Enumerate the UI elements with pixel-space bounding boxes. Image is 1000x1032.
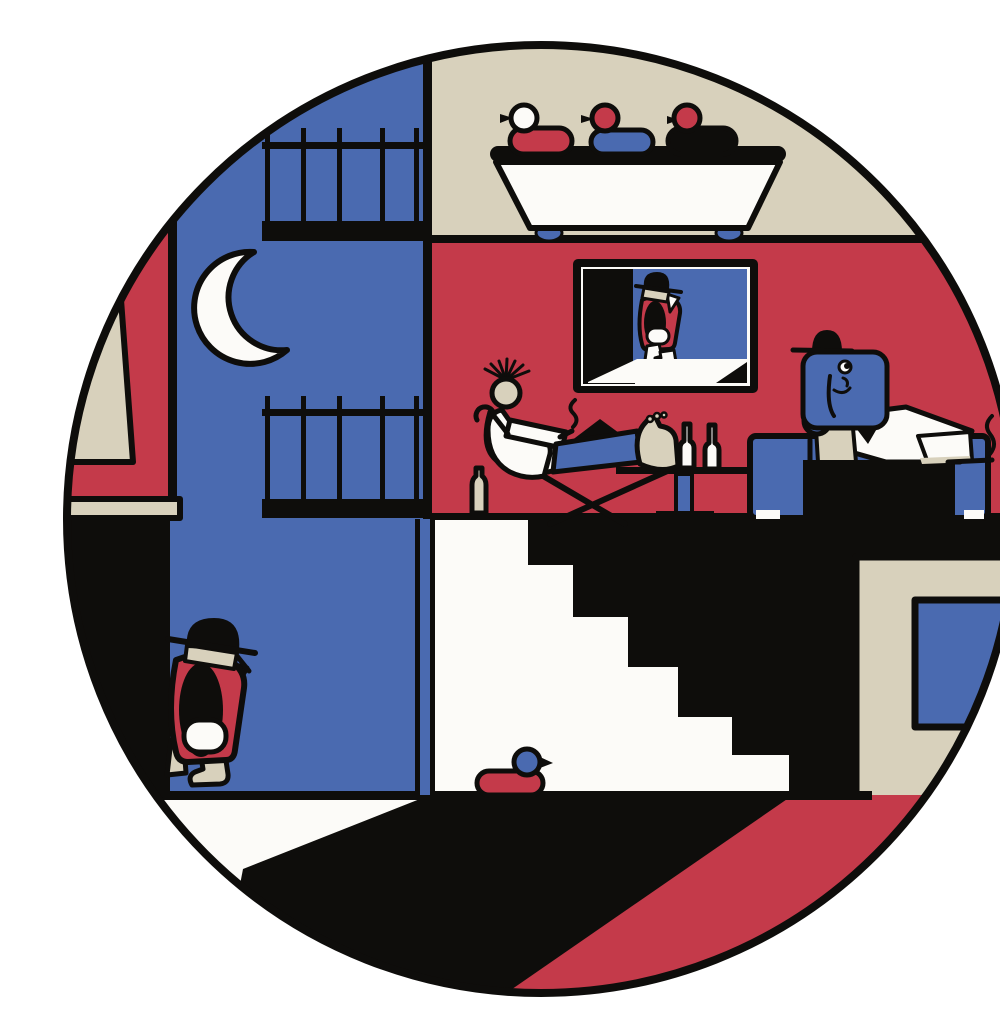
bottle-on-table-2: [705, 425, 719, 469]
side-table-base: [656, 511, 714, 520]
desk: [803, 460, 955, 518]
left-wall-line: [168, 213, 177, 518]
bottle-on-floor: [472, 468, 486, 513]
sofa-foot-right: [964, 510, 984, 519]
elephant-cigarette: [948, 460, 992, 462]
bathroom-floor-line: [425, 235, 1000, 243]
tv-with-walking-figure: [573, 259, 758, 393]
stair-wall-blue: [420, 519, 430, 795]
bathtub: [490, 146, 786, 241]
ledge: [55, 499, 180, 518]
illustration-stage: Circular flat-style illustration: night-…: [40, 16, 1000, 1016]
scene-svg: Circular flat-style illustration: night-…: [40, 16, 1000, 1016]
side-table-leg: [676, 474, 692, 514]
ground-line: [60, 791, 872, 800]
hat-brim: [793, 350, 852, 351]
duck-head: [514, 749, 540, 775]
sofa-foot-left: [756, 510, 780, 519]
window-lower-right: [915, 600, 1000, 727]
center-wall-line: [423, 50, 432, 519]
pocket: [184, 720, 226, 752]
bottle-on-table-1: [680, 424, 694, 468]
head: [492, 379, 520, 407]
